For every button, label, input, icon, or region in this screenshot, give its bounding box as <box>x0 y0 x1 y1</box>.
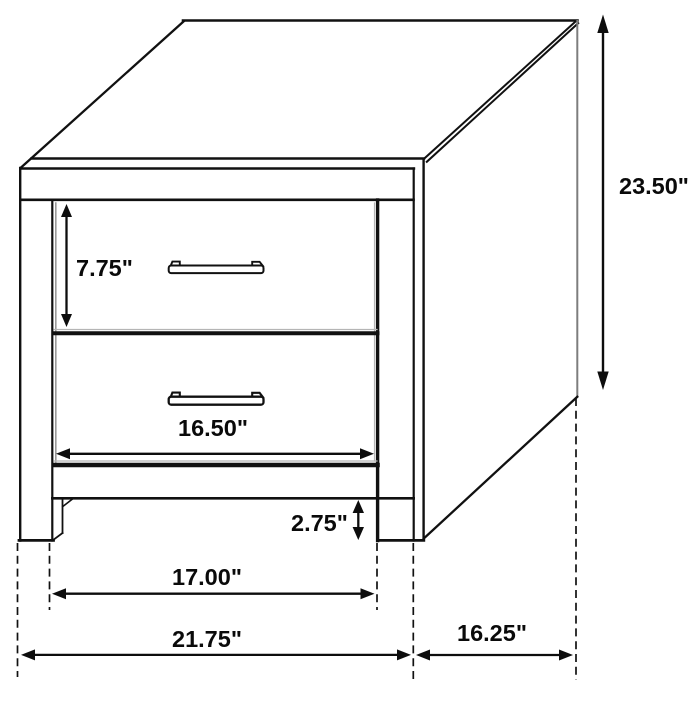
svg-text:23.50": 23.50" <box>619 173 689 199</box>
svg-text:7.75": 7.75" <box>76 255 133 281</box>
svg-text:16.50": 16.50" <box>178 415 248 441</box>
svg-text:17.00": 17.00" <box>172 564 242 590</box>
svg-text:16.25": 16.25" <box>457 620 527 646</box>
svg-text:21.75": 21.75" <box>172 626 242 652</box>
svg-text:2.75": 2.75" <box>291 510 348 536</box>
